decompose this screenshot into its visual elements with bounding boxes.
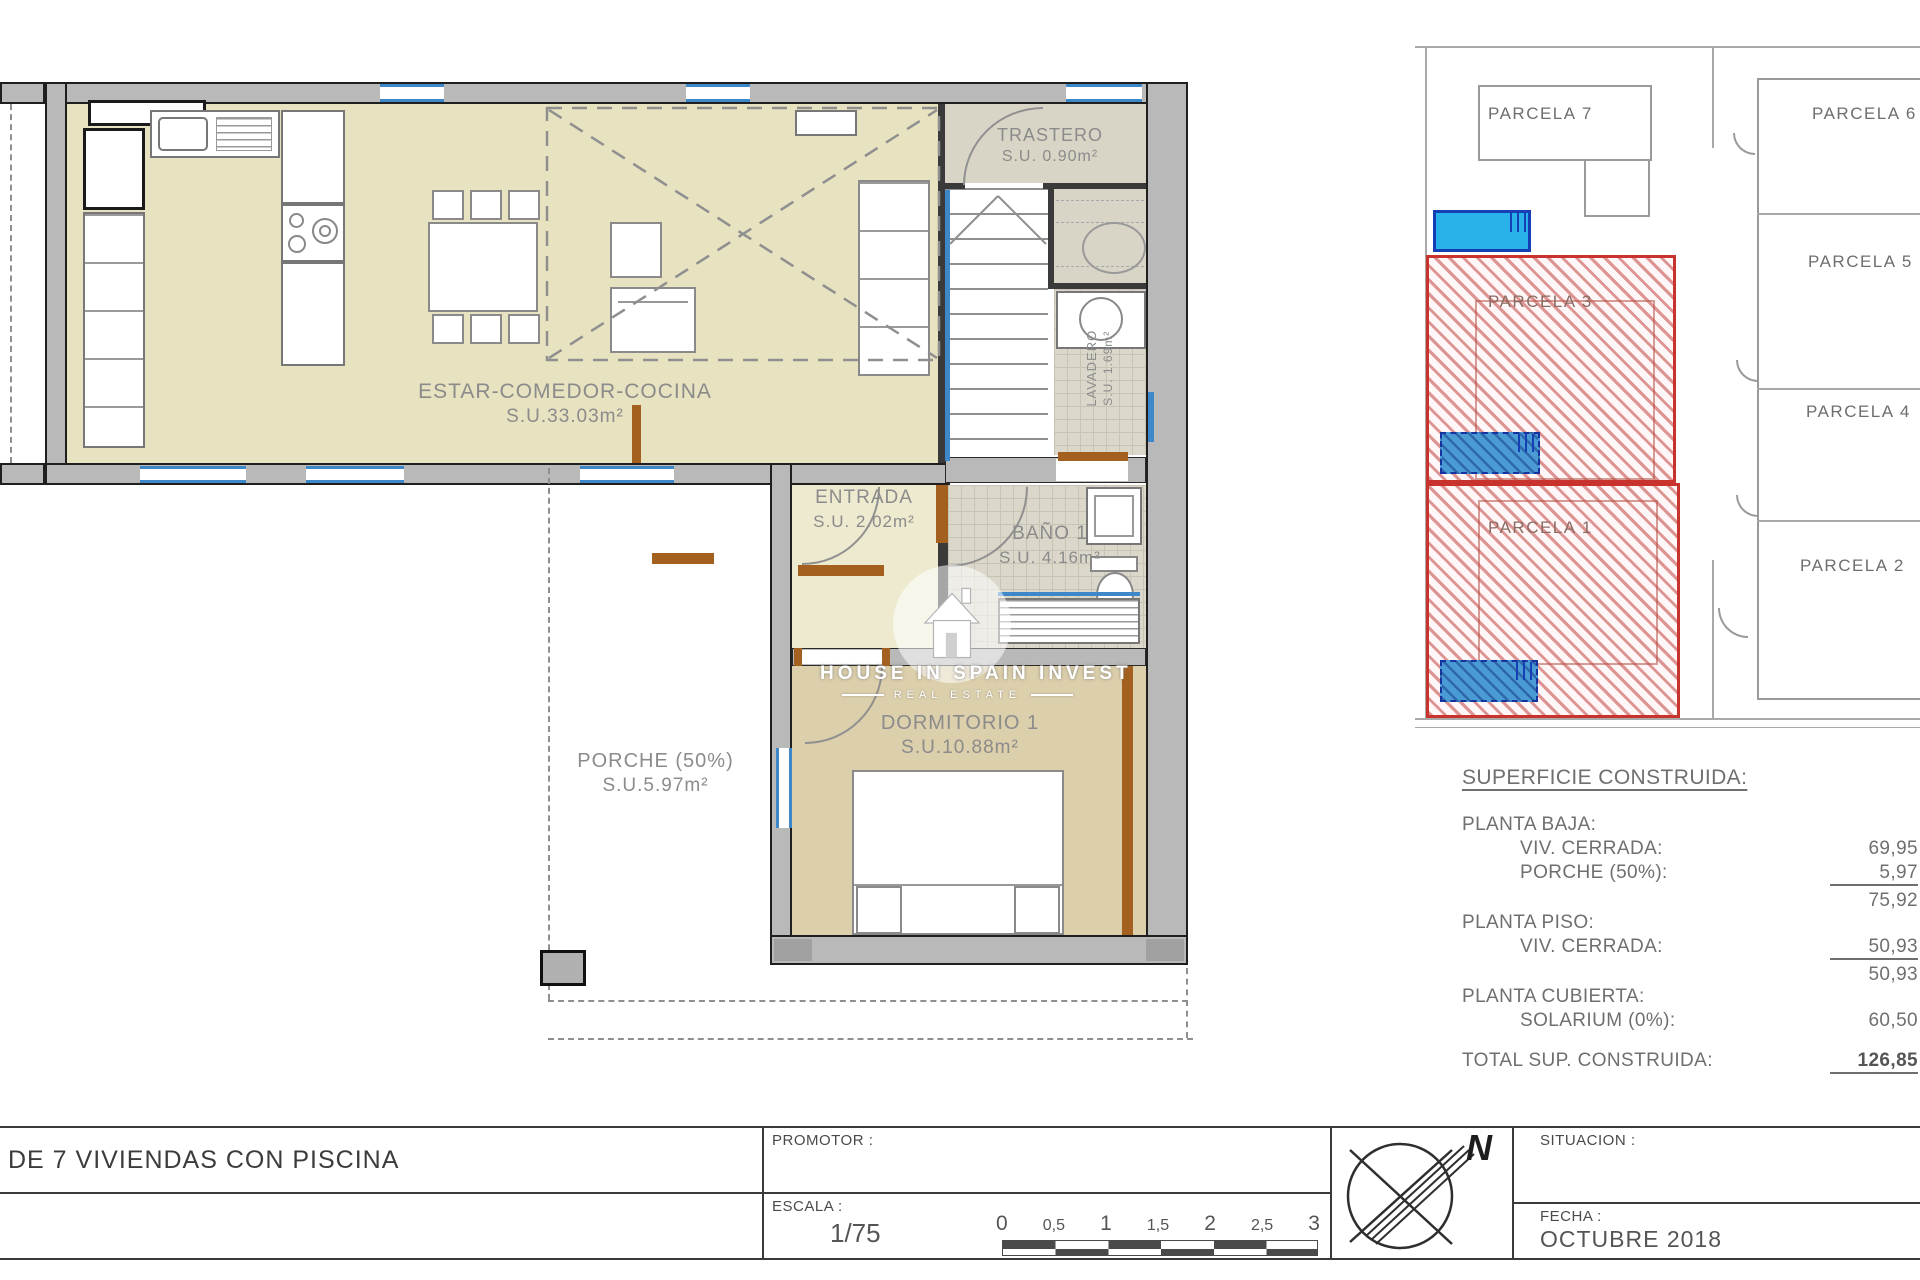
- boundary-wall-stub: [0, 82, 45, 104]
- watermark: HOUSE IN SPAIN INVEST REAL ESTATE: [820, 565, 1095, 715]
- scale-tick: 2,5: [1251, 1217, 1273, 1235]
- building-divider: [1757, 213, 1920, 215]
- title-block: DE 7 VIVIENDAS CON PISCINA PROMOTOR : ES…: [0, 1120, 1920, 1280]
- room-name: BAÑO 1: [960, 522, 1140, 547]
- situacion-label: SITUACION :: [1540, 1132, 1636, 1149]
- window: [140, 466, 246, 483]
- door-arc: [1736, 495, 1758, 517]
- pool-steps: [1516, 662, 1534, 680]
- row-label: VIV. CERRADA:: [1520, 838, 1663, 860]
- dining-chair: [470, 190, 502, 220]
- porch-dashed-boundary: [548, 1038, 1193, 1040]
- porch-door-leaf: [652, 553, 714, 564]
- promotor-label: PROMOTOR :: [772, 1132, 873, 1149]
- scale-tick: 1: [1100, 1212, 1112, 1236]
- room-name: LAVADERO: [1084, 303, 1101, 433]
- door-arc: [1718, 608, 1748, 638]
- parcela7-building-notch: [1584, 159, 1650, 217]
- bano-label: BAÑO 1 S.U. 4.16m²: [960, 522, 1140, 569]
- porch-dashed-boundary: [548, 468, 550, 1000]
- section-heading: PLANTA CUBIERTA:: [1462, 986, 1645, 1008]
- row-label: SOLARIUM (0%):: [1520, 1010, 1676, 1032]
- titleblock-border: [0, 1192, 1332, 1194]
- scale-tick: 2: [1204, 1212, 1216, 1236]
- porche-label: PORCHE (50%) S.U.5.97m²: [548, 748, 763, 799]
- watermark-subtext: REAL ESTATE: [894, 689, 1022, 701]
- wall-trastero-bottom: [945, 183, 965, 189]
- house-icon: [915, 581, 989, 665]
- row-value: 69,95: [1830, 838, 1918, 860]
- nook-hatch-line: [1056, 200, 1144, 201]
- building-divider: [1757, 520, 1920, 522]
- parcela6-label: PARCELA 6: [1812, 104, 1917, 124]
- window: [380, 84, 444, 102]
- room-area: S.U.33.03m²: [370, 405, 760, 430]
- dormitorio-label: DORMITORIO 1 S.U.10.88m²: [845, 710, 1075, 761]
- fecha-value: OCTUBRE 2018: [1540, 1226, 1722, 1253]
- trastero-label: TRASTERO S.U. 0.90m²: [960, 124, 1140, 168]
- nightstand: [856, 886, 902, 934]
- room-name: TRASTERO: [960, 124, 1140, 147]
- site-boundary: [1415, 727, 1920, 728]
- titleblock-border: [1512, 1126, 1514, 1260]
- parcela5-label: PARCELA 5: [1808, 252, 1913, 272]
- titleblock-border: [1512, 1202, 1920, 1204]
- dining-chair: [432, 314, 464, 344]
- surface-table-title: SUPERFICIE CONSTRUIDA:: [1462, 766, 1747, 790]
- room-name: PORCHE (50%): [548, 748, 763, 774]
- parcela7-label: PARCELA 7: [1488, 104, 1593, 124]
- titleblock-border: [0, 1258, 1920, 1260]
- scale-bar-ticks: 0 0,5 1 1,5 2 2,5 3: [996, 1212, 1320, 1236]
- entrada-label: ENTRADA S.U. 2.02m²: [788, 486, 940, 533]
- wall-lavadero-top: [1048, 283, 1146, 289]
- building-divider: [1757, 388, 1920, 390]
- kitchen-counter: [281, 262, 345, 366]
- boundary-wall-stub: [0, 463, 45, 485]
- kitchen-cabinets: [83, 212, 145, 448]
- sink-basin: [158, 117, 208, 151]
- dorm-wardrobe: [1122, 666, 1133, 935]
- wall-stairs-nook: [1048, 188, 1054, 287]
- row-label: PORCHE (50%):: [1520, 862, 1668, 884]
- parcela4-label: PARCELA 4: [1806, 402, 1911, 422]
- door-arc: [1736, 360, 1758, 382]
- room-area: S.U.10.88m²: [845, 736, 1075, 761]
- section-heading: PLANTA BAJA:: [1462, 814, 1596, 836]
- row-value: 5,97: [1830, 862, 1918, 886]
- window: [306, 466, 404, 483]
- escala-value: 1/75: [830, 1218, 881, 1249]
- floor-plan: ESTAR-COMEDOR-COCINA S.U.33.03m² TRASTER…: [0, 0, 1200, 1100]
- total-value: 126,85: [1830, 1050, 1918, 1074]
- watermark-subtext-row: REAL ESTATE: [840, 689, 1075, 701]
- wall-corner-block: [774, 939, 812, 961]
- project-title: DE 7 VIVIENDAS CON PISCINA: [8, 1146, 399, 1175]
- scale-tick: 0: [996, 1212, 1008, 1236]
- living-label: ESTAR-COMEDOR-COCINA S.U.33.03m²: [370, 378, 760, 430]
- total-label: TOTAL SUP. CONSTRUIDA:: [1462, 1050, 1713, 1072]
- wall-mid-vertical: [770, 463, 792, 965]
- sink-drainer: [216, 117, 272, 151]
- wall-trastero-bottom: [1043, 183, 1146, 189]
- wall-corner-block: [1146, 939, 1184, 961]
- room-area: S.U.5.97m²: [548, 774, 763, 799]
- watermark-rule: [842, 694, 884, 696]
- wall-left: [45, 82, 67, 485]
- dining-chair: [508, 314, 540, 344]
- site-boundary: [1415, 46, 1920, 48]
- burner: [288, 235, 306, 253]
- street-line: [1712, 46, 1714, 148]
- watermark-text: HOUSE IN SPAIN INVEST: [820, 663, 1095, 685]
- nightstand: [1014, 886, 1060, 934]
- dorm-door-jamb: [794, 648, 802, 666]
- boundary-dashed-line: [10, 104, 12, 463]
- pool-steps: [1518, 434, 1536, 452]
- scale-tick: 0,5: [1043, 1217, 1065, 1235]
- watermark-rule: [1031, 694, 1073, 696]
- fridge: [83, 128, 145, 210]
- north-compass: N: [1338, 1130, 1510, 1256]
- parcela1-label: PARCELA 1: [1488, 518, 1593, 538]
- section-heading: PLANTA PISO:: [1462, 912, 1594, 934]
- wall-top: [45, 82, 1188, 104]
- porch-pillar: [540, 950, 586, 986]
- scale-tick: 3: [1308, 1212, 1320, 1236]
- window: [776, 748, 792, 828]
- north-label: N: [1466, 1130, 1493, 1168]
- row-value: 60,50: [1830, 1010, 1918, 1032]
- scale-bar: [1002, 1240, 1318, 1256]
- plan-sheet: ESTAR-COMEDOR-COCINA S.U.33.03m² TRASTER…: [0, 0, 1920, 1280]
- row-label: VIV. CERRADA:: [1520, 936, 1663, 958]
- room-area: S.U. 0.90m²: [960, 147, 1140, 168]
- surface-table: SUPERFICIE CONSTRUIDA: PLANTA BAJA: VIV.…: [1462, 766, 1920, 1066]
- subtotal-value: 50,93: [1830, 964, 1918, 986]
- site-boundary: [1415, 718, 1920, 720]
- lavadero-window: [1148, 392, 1154, 442]
- wall-dorm-bottom: [770, 935, 1188, 965]
- burner: [289, 213, 304, 228]
- kitchen-counter: [281, 110, 345, 204]
- parcela3-label: PARCELA 3: [1488, 292, 1593, 312]
- lavadero-door-opening: [1056, 459, 1128, 481]
- fecha-label: FECHA :: [1540, 1208, 1602, 1225]
- ceiling-dashed-marker: [545, 106, 941, 362]
- room-name: ESTAR-COMEDOR-COCINA: [370, 378, 760, 405]
- dining-chair: [432, 190, 464, 220]
- parcela2-label: PARCELA 2: [1800, 556, 1905, 576]
- door-arc: [1733, 133, 1755, 155]
- nook-hatch-line: [1056, 222, 1144, 223]
- window: [686, 84, 750, 102]
- dining-chair: [508, 190, 540, 220]
- dining-table: [428, 222, 538, 312]
- window: [580, 466, 674, 483]
- room-area: S.U. 2.02m²: [788, 511, 940, 533]
- pool-steps: [1510, 212, 1529, 232]
- subtotal-value: 75,92: [1830, 890, 1918, 912]
- wall-right: [1146, 82, 1188, 965]
- row-value: 50,93: [1830, 936, 1918, 960]
- scale-tick: 1,5: [1147, 1217, 1169, 1235]
- stairs-direction-lines: [948, 190, 1048, 248]
- street-line: [1712, 560, 1714, 718]
- titleblock-border: [0, 1126, 1920, 1128]
- dining-chair: [470, 314, 502, 344]
- escala-label: ESCALA :: [772, 1198, 843, 1215]
- porch-dashed-boundary: [548, 1000, 1188, 1002]
- site-plan: PARCELA 7 PARCELA 6 PARCELA 5 PARCELA 4 …: [1400, 30, 1920, 740]
- porch-dashed-boundary: [1186, 968, 1188, 1038]
- window: [1066, 84, 1142, 102]
- boiler: [1082, 222, 1146, 274]
- lavadero-label: LAVADERO S.U. 1.69m²: [1084, 303, 1116, 433]
- burner: [319, 225, 331, 237]
- room-area: S.U. 1.69m²: [1101, 303, 1117, 433]
- room-name: ENTRADA: [788, 486, 940, 511]
- lavadero-door-leaf: [1058, 452, 1128, 461]
